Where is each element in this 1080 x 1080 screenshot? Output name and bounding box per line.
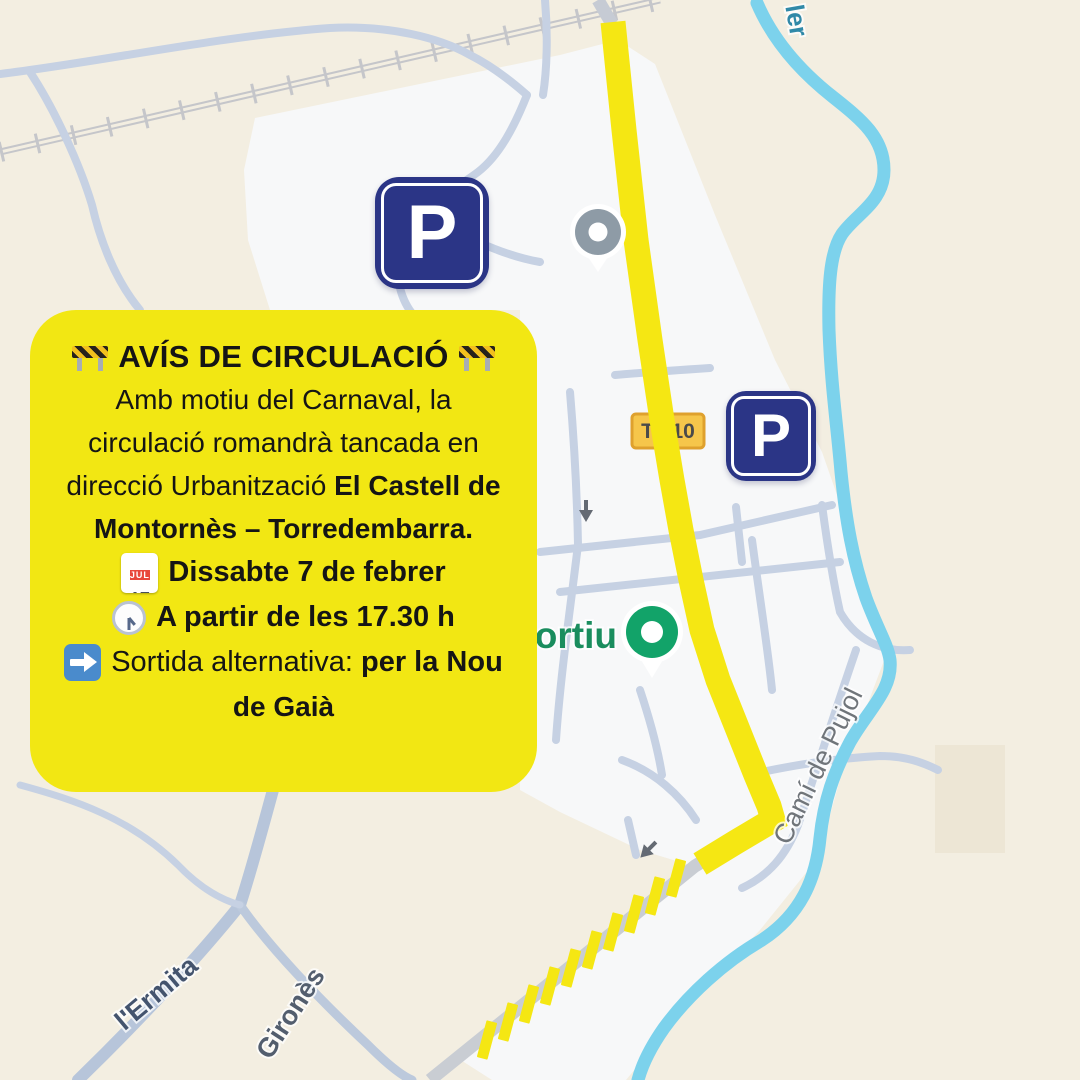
construction-barrier-icon	[72, 343, 108, 371]
water-label: ler	[779, 2, 814, 39]
notice-title: AVÍS DE CIRCULACIÓ	[118, 339, 448, 375]
parking-sign-letter: P	[751, 406, 791, 466]
flyer-canvas: T-210 Camí de Pujol l'Ermita Gironès ler…	[0, 0, 1080, 1080]
building-footprint	[935, 745, 1005, 853]
parking-sign-north: P	[375, 177, 489, 289]
parking-sign-border: P	[731, 396, 811, 476]
clock-icon	[112, 601, 146, 635]
right-arrow-icon	[64, 644, 101, 681]
notice-alternative-text: Sortida alternativa:	[111, 646, 353, 679]
construction-barrier-icon	[459, 343, 495, 371]
notice-date-row: JUL 17 Dissabte 7 de febrer	[48, 550, 519, 595]
notice-time-row: A partir de les 17.30 h	[48, 595, 519, 640]
notice-alternative-line2: de Gaià	[48, 685, 519, 728]
notice-title-row: AVÍS DE CIRCULACIÓ	[48, 336, 519, 378]
traffic-notice-card: AVÍS DE CIRCULACIÓ Amb motiu del Carnava…	[30, 310, 537, 792]
calendar-icon: JUL 17	[121, 553, 158, 593]
notice-body-line4: Montornès – Torredembarra.	[48, 507, 519, 550]
notice-time-text: A partir de les 17.30 h	[156, 601, 455, 634]
notice-body-line3: direcció Urbanització El Castell de	[48, 464, 519, 507]
notice-body-line2: circulació romandrà tancada en	[48, 421, 519, 464]
notice-body-line1: Amb motiu del Carnaval, la	[48, 378, 519, 421]
notice-alternative-row: Sortida alternativa: per la Nou	[48, 640, 519, 685]
parking-sign-letter: P	[407, 195, 458, 271]
notice-date-text: Dissabte 7 de febrer	[168, 556, 445, 589]
parking-sign-border: P	[381, 183, 483, 283]
parking-sign-east: P	[726, 391, 816, 481]
notice-alternative-bold: per la Nou	[361, 646, 503, 679]
